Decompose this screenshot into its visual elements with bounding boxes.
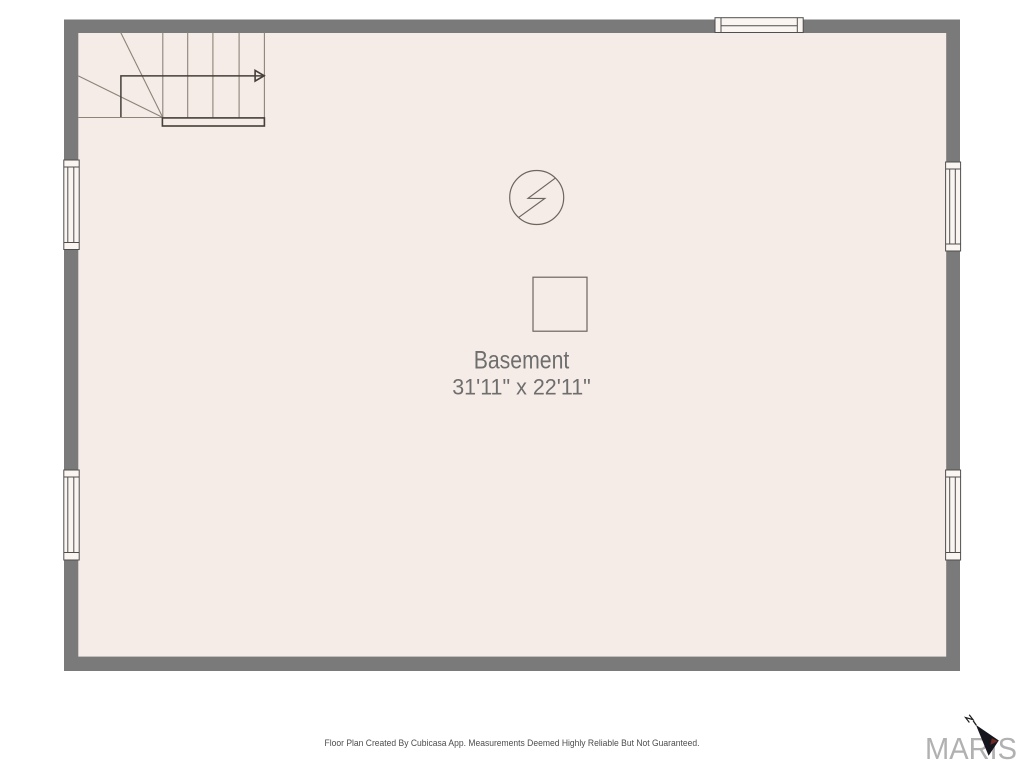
svg-text:MARIS: MARIS (925, 731, 1017, 766)
svg-text:Floor Plan Created By Cubicasa: Floor Plan Created By Cubicasa App. Meas… (325, 738, 700, 749)
svg-text:Basement: Basement (474, 347, 570, 375)
svg-text:31'11" x 22'11": 31'11" x 22'11" (452, 374, 591, 399)
